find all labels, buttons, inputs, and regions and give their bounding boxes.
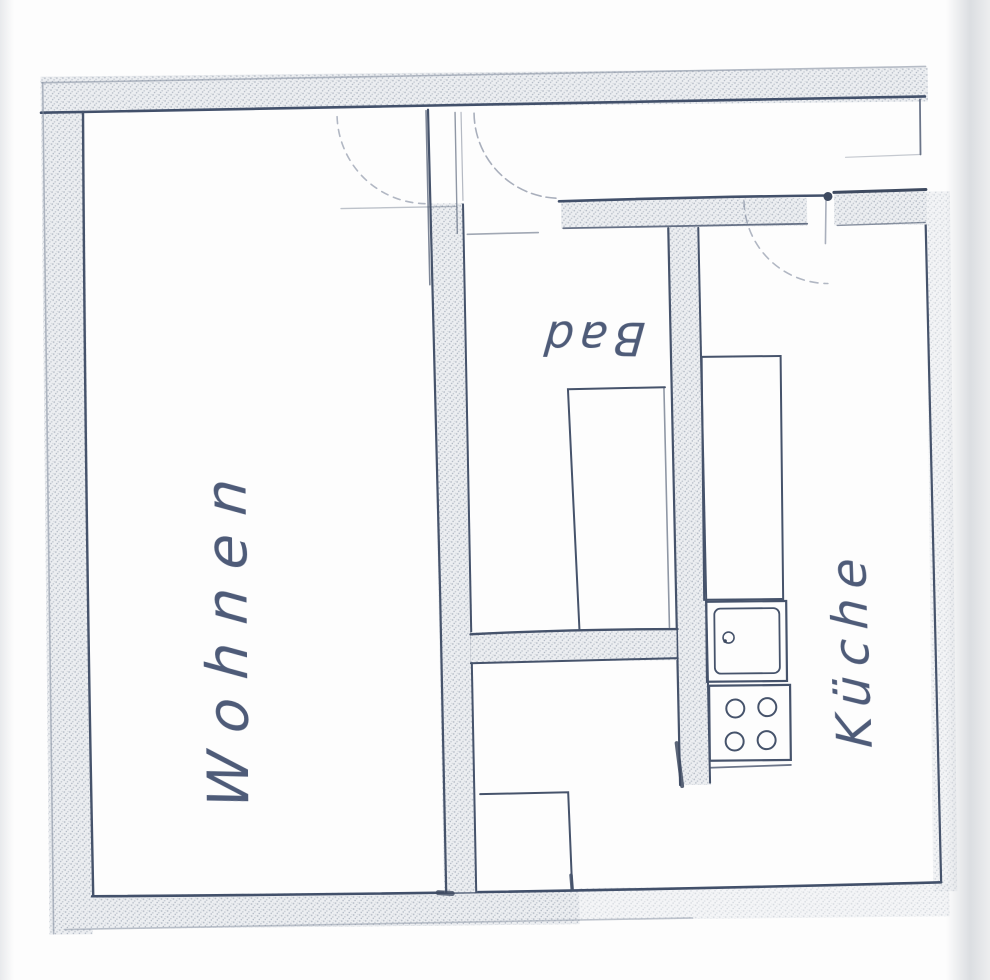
top-wall-right-end-return <box>920 100 921 155</box>
entry-door-swing-left-arc <box>337 116 425 205</box>
kitchen-door-leaf <box>825 201 826 244</box>
closet-nook-corner-blob <box>571 875 572 889</box>
stove-burner-1 <box>726 699 744 717</box>
floorplan-drawing <box>0 0 990 980</box>
entry-door-swing-right-arc <box>474 112 560 199</box>
stove-burner-3 <box>726 732 744 750</box>
scanned-floorplan-sheet: Wohnen Bad Küche <box>0 0 990 980</box>
room-label-bad: Bad <box>537 310 647 365</box>
stove-burner-2 <box>758 698 776 716</box>
wall-bottom-junction-blob <box>438 892 452 893</box>
room-label-kueche: Küche <box>820 547 884 749</box>
kitchen-counter <box>702 356 784 600</box>
door-hinge-dot <box>823 192 832 201</box>
stove-burner-4 <box>758 731 776 749</box>
bathroom-fixtures <box>568 387 670 630</box>
door-jamb-stub-line-c <box>461 112 463 200</box>
closet-nook-outline <box>480 792 572 889</box>
interior-walls <box>340 104 934 894</box>
stove <box>709 685 791 761</box>
bathtub-right-edge <box>664 388 670 627</box>
wall-kueche-top <box>834 191 927 225</box>
threshold-line-corridor <box>467 233 538 235</box>
bathtub <box>568 387 668 630</box>
outer-wall-right <box>926 191 957 891</box>
wall-bad-bottom <box>470 630 676 662</box>
threshold-line-right-opening <box>846 155 920 158</box>
kitchen-fixtures <box>702 356 791 768</box>
kitchen-sink-outer <box>706 601 787 682</box>
stove-bottom-line <box>710 765 791 768</box>
room-label-wohnen: Wohnen <box>193 458 262 811</box>
hall-closet <box>480 792 572 890</box>
